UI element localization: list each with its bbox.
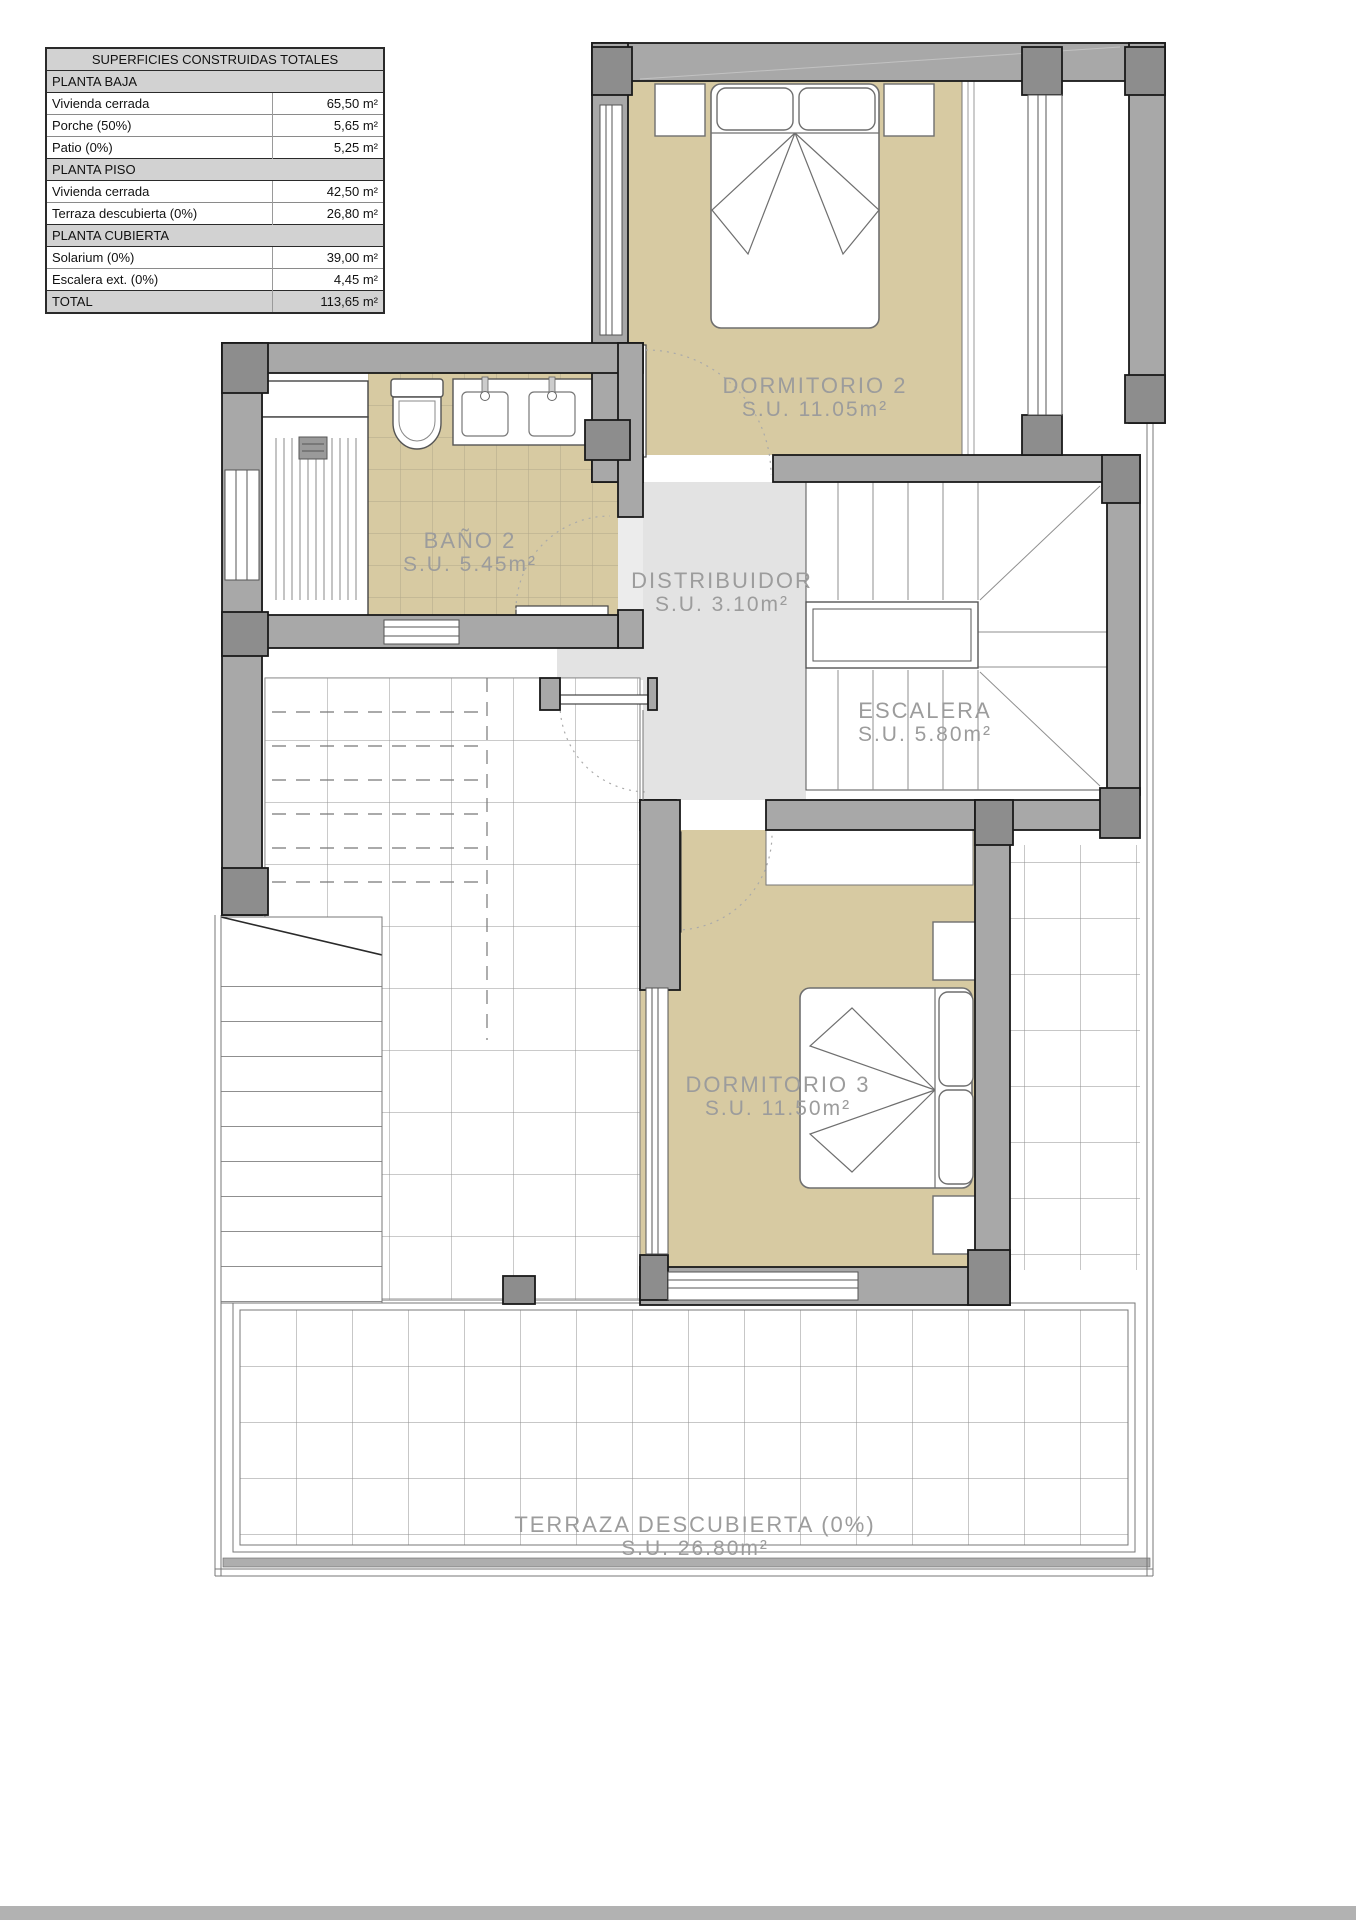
window-dorm2-left [600,105,622,335]
terraza-tile-grid [240,1310,1128,1545]
table-row-total: TOTAL 113,65 m² [46,291,384,314]
window-dorm2-right [1028,95,1062,415]
pillow [939,992,973,1086]
room-label-terraza: TERRAZA DESCUBIERTA (0%) [514,1512,875,1537]
wall-bath-top [222,343,643,373]
table-row: PLANTA BAJA [46,71,384,93]
table-row: Terraza descubierta (0%) 26,80 m² [46,203,384,225]
page-footer-bar [0,1906,1356,1920]
room-area-dormitorio-3: S.U. 11.50m² [705,1097,851,1120]
room-area-bano-2: S.U. 5.45m² [403,553,537,576]
roof-area [221,678,640,1303]
closet-dormitorio-3 [766,830,973,885]
pillow [717,88,793,130]
wall-escalera-right [1107,455,1140,795]
stair-treads [221,952,382,1303]
door-leaf [560,695,648,704]
window-left-wall [225,470,259,580]
table-row: Escalera ext. (0%) 4,45 m² [46,269,384,291]
room-area-distribuidor: S.U. 3.10m² [655,593,789,616]
nightstand [933,1196,977,1254]
room-label-bano-2: BAÑO 2 [424,528,517,553]
nightstand [884,84,934,136]
shower [262,381,368,617]
room-area-terraza: S.U. 26.80m² [621,1537,769,1560]
table-row: PLANTA CUBIERTA [46,225,384,247]
table-row: Vivienda cerrada 65,50 m² [46,93,384,115]
window-bath-bottom [384,620,459,644]
wall-dorm3-right [975,800,1010,1270]
side-tile-strip [1010,845,1140,1270]
faucet [482,377,488,392]
distribuidor-floor [643,482,806,800]
surfaces-table: SUPERFICIES CONSTRUIDAS TOTALES PLANTA B… [45,47,385,314]
exterior-stair [221,917,382,1303]
stairwell-void [806,602,978,668]
wall-right-upper [1129,43,1165,423]
room-area-dormitorio-2: S.U. 11.05m² [742,398,888,421]
toilet [391,379,443,449]
room-area-escalera: S.U. 5.80m² [858,723,992,746]
room-label-distribuidor: DISTRIBUIDOR [631,568,813,593]
bed-dormitorio-2 [711,84,879,328]
room-label-dormitorio-2: DORMITORIO 2 [723,373,908,398]
table-row: PLANTA PISO [46,159,384,181]
wall-dorm3-left [640,800,680,990]
table-row: Porche (50%) 5,65 m² [46,115,384,137]
surfaces-table-title: SUPERFICIES CONSTRUIDAS TOTALES [46,48,384,71]
table-row: Solarium (0%) 39,00 m² [46,247,384,269]
window-dorm3-left [646,988,668,1254]
floor-plan-page: DORMITORIO 2 S.U. 11.05m² BAÑO 2 S.U. 5.… [0,0,1356,1920]
wall-top [592,43,1165,81]
nightstand [655,84,705,136]
wardrobe-dormitorio-2 [962,81,1028,455]
pillow [939,1090,973,1184]
door-leaf [516,606,608,615]
surfaces-table-header: SUPERFICIES CONSTRUIDAS TOTALES [46,48,384,71]
nightstand [933,922,977,980]
room-label-dormitorio-3: DORMITORIO 3 [686,1072,871,1097]
faucet [549,377,555,392]
shower-drain [299,437,327,459]
table-row: Patio (0%) 5,25 m² [46,137,384,159]
table-row: Vivienda cerrada 42,50 m² [46,181,384,203]
room-label-escalera: ESCALERA [858,698,991,723]
window-dorm3-bottom [668,1272,858,1300]
pillow [799,88,875,130]
wall-stub [540,678,560,710]
